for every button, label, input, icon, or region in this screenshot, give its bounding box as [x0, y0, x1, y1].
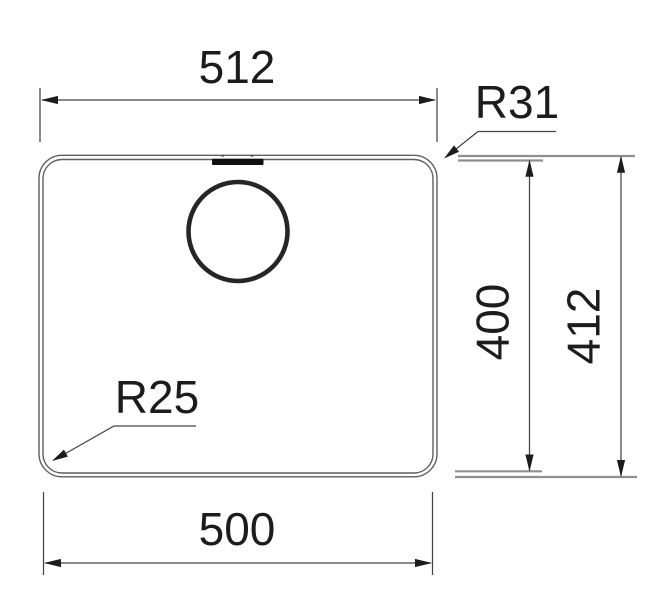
arrow-412-up — [617, 156, 625, 173]
sink-dimension-drawing: 512 500 R31 R25 400 412 — [0, 0, 669, 599]
arrow-500-right — [415, 559, 432, 567]
label-radius-top-right: R31 — [475, 76, 559, 128]
arrow-400-down — [525, 455, 533, 472]
sink-inner-bowl — [43, 160, 433, 474]
label-radius-bottom-left: R25 — [115, 371, 199, 423]
arrow-r31-leader — [444, 145, 459, 158]
sink-outline-group — [39, 155, 437, 477]
arrowheads-group — [41, 96, 625, 567]
leader-line-r25 — [54, 426, 196, 460]
arrow-512-left — [41, 96, 58, 104]
overflow-slot — [212, 159, 264, 165]
slot-mark-left — [222, 155, 225, 157]
sink-outer-rim — [39, 155, 437, 477]
leader-line-r31 — [446, 132, 556, 158]
label-dim-top-width: 512 — [199, 41, 276, 93]
arrow-412-down — [617, 460, 625, 477]
arrow-400-up — [525, 160, 533, 177]
arrow-512-right — [419, 96, 436, 104]
arrow-r25-leader — [52, 450, 68, 461]
label-dim-bottom-width: 500 — [199, 503, 276, 555]
arrow-500-left — [44, 559, 61, 567]
label-dim-inner-height: 400 — [467, 284, 519, 361]
drain-hole-circle — [189, 182, 288, 281]
slot-mark-right — [251, 155, 254, 157]
technical-drawing-canvas: 512 500 R31 R25 400 412 — [0, 0, 669, 599]
label-dim-outer-height: 412 — [558, 288, 610, 365]
